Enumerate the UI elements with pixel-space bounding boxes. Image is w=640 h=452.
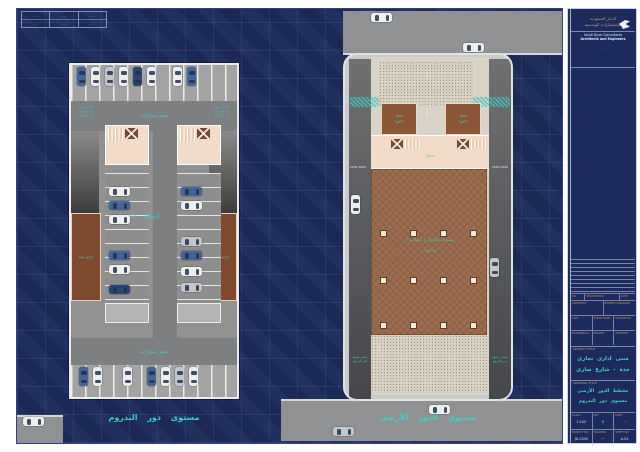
shop-area: ٣٦م٢: [395, 119, 404, 125]
project-title-line2: جدة - شارع صارى: [571, 365, 635, 375]
lobby-core-band: مدخل: [371, 135, 489, 169]
company-tagline: Architects and Engineers: [571, 37, 635, 42]
service-room-left: [105, 303, 149, 323]
legend-table: · ·· · ····· ···· ······ ····· · ······: [21, 11, 107, 28]
legend-cell: ·····: [22, 20, 49, 27]
stamp-cell: DRAWN: [593, 330, 615, 345]
structural-column-icon: [441, 231, 446, 236]
rev-desc-header: DESCRIPTION: [585, 293, 620, 300]
car-icon: [161, 367, 170, 386]
stamp-row: CIVIL STRUCTURAL ELECTRICAL: [571, 315, 635, 330]
company-logo-block: الديار السعودية للإستشارات الهندسية Saud…: [571, 13, 635, 65]
car-icon: [333, 427, 354, 436]
stamp-cell: MECHANICAL: [571, 330, 593, 345]
legend-cell: ······: [50, 20, 77, 27]
structural-column-icon: [471, 278, 476, 283]
ramp-note-left: منحدر هبوط الى البدروم: [348, 355, 372, 363]
car-icon: [109, 187, 130, 196]
car-icon: [187, 67, 196, 86]
structural-column-icon: [381, 323, 386, 328]
car-icon: [123, 367, 132, 386]
car-icon: [173, 67, 182, 86]
project-title-label: PROJECT TITLE: [571, 346, 635, 351]
legend-column: · ·· · ·····: [22, 12, 50, 27]
stamp-cell: ELECTRICAL: [614, 315, 635, 330]
car-icon: [105, 67, 114, 86]
structural-column-icon: [411, 323, 416, 328]
ground-caption: مستوى الدور الأرضى: [343, 413, 513, 422]
structural-column-icon: [441, 323, 446, 328]
drawing-no-cell: DRAWING····: [593, 429, 615, 446]
waiting-area-label: انتظار سيارات: [81, 211, 191, 220]
stair-core-left: [105, 125, 149, 165]
car-icon: [490, 258, 499, 277]
ground-floor-plan: محل ٣٦م٢ محل ٣٦م٢ مدخل مساحة للايجار ( م…: [343, 53, 513, 401]
legend-cell: ····: [50, 12, 77, 20]
shop-room-right: محل ٣٦م٢: [445, 103, 481, 135]
ramp-note-right: منحدر صعود من البدروم: [488, 355, 512, 363]
car-icon: [351, 195, 360, 214]
car-icon: [109, 285, 130, 294]
structural-column-icon: [471, 323, 476, 328]
legend-cell: · ·· ·: [22, 12, 49, 20]
project-no-value: JD-2043: [571, 437, 592, 441]
legend-cell: ······: [79, 20, 106, 27]
date-cell: DATE····: [614, 412, 635, 429]
drawing-title-line1: مخطط الدور الأرضى: [571, 388, 635, 397]
car-icon: [93, 367, 102, 386]
car-icon: [109, 215, 130, 224]
basement-floor-plan: ممر سيارات منحدر هبوط من الأرضى الى البد…: [69, 63, 239, 399]
stamp-cell: STRUCTURAL: [593, 315, 615, 330]
legend-column: ····· · ······: [79, 12, 106, 27]
sheet-no-value: A-01: [614, 437, 635, 441]
structural-column-icon: [381, 278, 386, 283]
ramp-left: [71, 131, 99, 213]
rear-plaza: [371, 335, 487, 393]
water-tank-room-left: خزان مياه: [71, 213, 101, 301]
car-icon: [181, 201, 202, 210]
driveway-right: [489, 59, 511, 399]
car-icon: [109, 201, 130, 210]
stairs-icon: [108, 128, 123, 142]
company-address: · · · · · · · · · · · ·: [571, 48, 635, 52]
dimension-vertical: 7500: [425, 71, 429, 79]
car-icon: [181, 283, 202, 292]
rental-hall-label: مساحة للايجار ( محلات ): [372, 238, 488, 243]
rental-hall: مساحة للايجار ( محلات ) ٣٦٥م٢: [371, 169, 487, 335]
stamp-row: ARCHITECT PROJECT MANAGER: [571, 300, 635, 315]
structural-column-icon: [411, 231, 416, 236]
elevator-icon: [197, 128, 210, 139]
structural-column-icon: [441, 278, 446, 283]
dimension-left: 2200 3600: [345, 165, 371, 169]
car-icon: [181, 187, 202, 196]
rental-hall-area: ٣٦٥م٢: [372, 248, 488, 253]
legend-cell: ····· ·: [79, 12, 106, 20]
car-icon: [181, 237, 202, 246]
drive-aisle-bottom: ممر سيارات: [71, 338, 237, 365]
stairs-icon: [180, 128, 195, 142]
car-icon: [133, 67, 142, 86]
blueprint-paper: · ·· · ····· ···· ······ ····· · ······ …: [16, 8, 563, 444]
stamp-cell: PROJECT MANAGER: [604, 300, 636, 315]
scale-value: 1:100: [571, 420, 592, 424]
elevator-icon: [125, 128, 138, 139]
car-icon: [463, 43, 484, 52]
rev-no-header: NO.: [571, 293, 585, 300]
drawing-sheet: · ·· · ····· ···· ······ ····· · ······ …: [0, 0, 640, 452]
meta-row: SCALE1:100 REF.0 DATE····: [571, 412, 635, 429]
date-value: ····: [614, 420, 635, 424]
dimension-vertical: 1800: [377, 345, 381, 353]
car-icon: [147, 367, 156, 386]
ramp-note-right: منحدر صعود من البدروم الى الأرضى: [208, 105, 236, 117]
drawing-title-line2: مستوى دور البدروم: [571, 398, 635, 407]
car-icon: [91, 67, 100, 86]
stamp-cell: CIVIL: [571, 315, 593, 330]
car-icon: [23, 417, 44, 426]
car-icon: [189, 367, 198, 386]
project-no-cell: PROJECT NO.JD-2043: [571, 429, 593, 446]
structural-column-icon: [381, 231, 386, 236]
driveway-left: [349, 59, 371, 399]
service-room-right: [177, 303, 221, 323]
car-icon: [109, 251, 130, 260]
car-icon: [119, 67, 128, 86]
car-icon: [371, 13, 392, 22]
revision-rows: [571, 259, 635, 293]
drawing-title-label: DRAWING TITLE: [571, 380, 635, 385]
ramp-note-left: منحدر هبوط من الأرضى الى البدروم: [72, 105, 100, 117]
shop-area: ٣٦م٢: [459, 119, 468, 125]
stamp-cell: CHECKED: [614, 330, 635, 345]
sheet-no-cell: SHEET NO.A-01: [614, 429, 635, 446]
basement-caption: مستوى دور البدروم: [69, 413, 239, 422]
drawing-no-value: ····: [593, 437, 614, 441]
ref-cell: REF.0: [593, 412, 615, 429]
stamp-cell: ARCHITECT: [571, 300, 604, 315]
scale-cell: SCALE1:100: [571, 412, 593, 429]
car-icon: [181, 251, 202, 260]
planter-strip-left: [350, 97, 379, 107]
car-icon: [77, 67, 86, 86]
entrance-plaza: [379, 61, 473, 107]
stamp-row: MECHANICAL DRAWN CHECKED: [571, 330, 635, 345]
rev-date-header: DATE: [620, 293, 635, 300]
project-title-line1: مبنى ادارى تجارى: [571, 354, 635, 364]
stairs-icon: [405, 139, 421, 149]
water-tank-label: خزان مياه: [79, 255, 94, 259]
elevator-icon: [391, 139, 403, 149]
ref-value: 0: [593, 420, 614, 424]
shop-room-left: محل ٣٦م٢: [381, 103, 417, 135]
car-icon: [429, 405, 450, 414]
meta-row: PROJECT NO.JD-2043 DRAWING···· SHEET NO.…: [571, 429, 635, 446]
structural-column-icon: [471, 231, 476, 236]
car-icon: [181, 267, 202, 276]
dimension-right: 3600 2200: [485, 165, 513, 169]
car-icon: [175, 367, 184, 386]
car-icon: [109, 265, 130, 274]
car-icon: [79, 367, 88, 386]
elevator-icon: [457, 139, 469, 149]
dimension-vertical: 3000: [425, 109, 429, 117]
legend-column: ···· ······: [50, 12, 78, 27]
entrance-label: مدخل: [415, 153, 445, 158]
aisle-label: ممر سيارات: [140, 113, 168, 119]
title-block: الديار السعودية للإستشارات الهندسية Saud…: [567, 8, 637, 444]
stair-core-right: [177, 125, 221, 165]
stairs-icon: [471, 139, 487, 149]
revision-header: NO. DESCRIPTION DATE: [571, 293, 635, 300]
aisle-label: ممر سيارات: [140, 349, 168, 355]
car-icon: [147, 67, 156, 86]
central-aisle: [153, 131, 177, 338]
structural-column-icon: [411, 278, 416, 283]
